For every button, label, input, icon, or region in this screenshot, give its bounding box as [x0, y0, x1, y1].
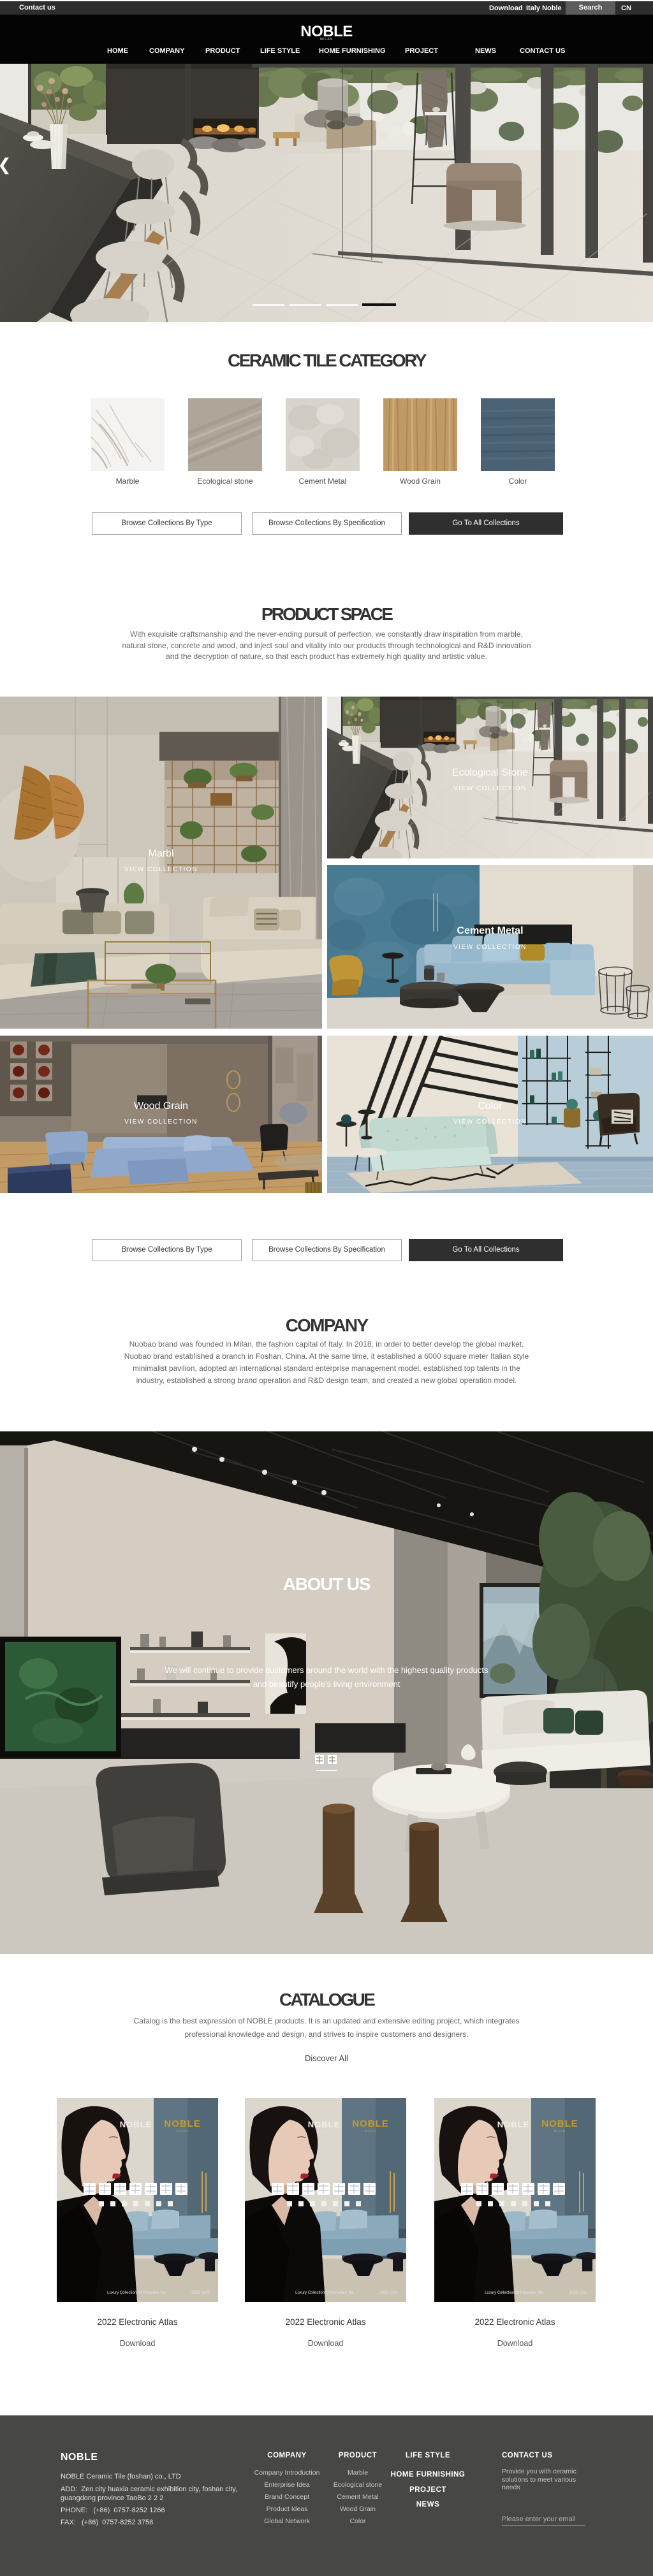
svg-text:2022 (2#): 2022 (2#): [191, 2290, 209, 2295]
svg-text:NOBLE: NOBLE: [164, 2118, 201, 2129]
svg-text:MILAN: MILAN: [130, 2130, 141, 2133]
svg-text:NOBLE: NOBLE: [120, 2120, 152, 2129]
svg-text:Luxury Collection Of Porcelain: Luxury Collection Of Porcelain Tile: [107, 2291, 166, 2295]
svg-text:MILAN: MILAN: [177, 2129, 189, 2132]
